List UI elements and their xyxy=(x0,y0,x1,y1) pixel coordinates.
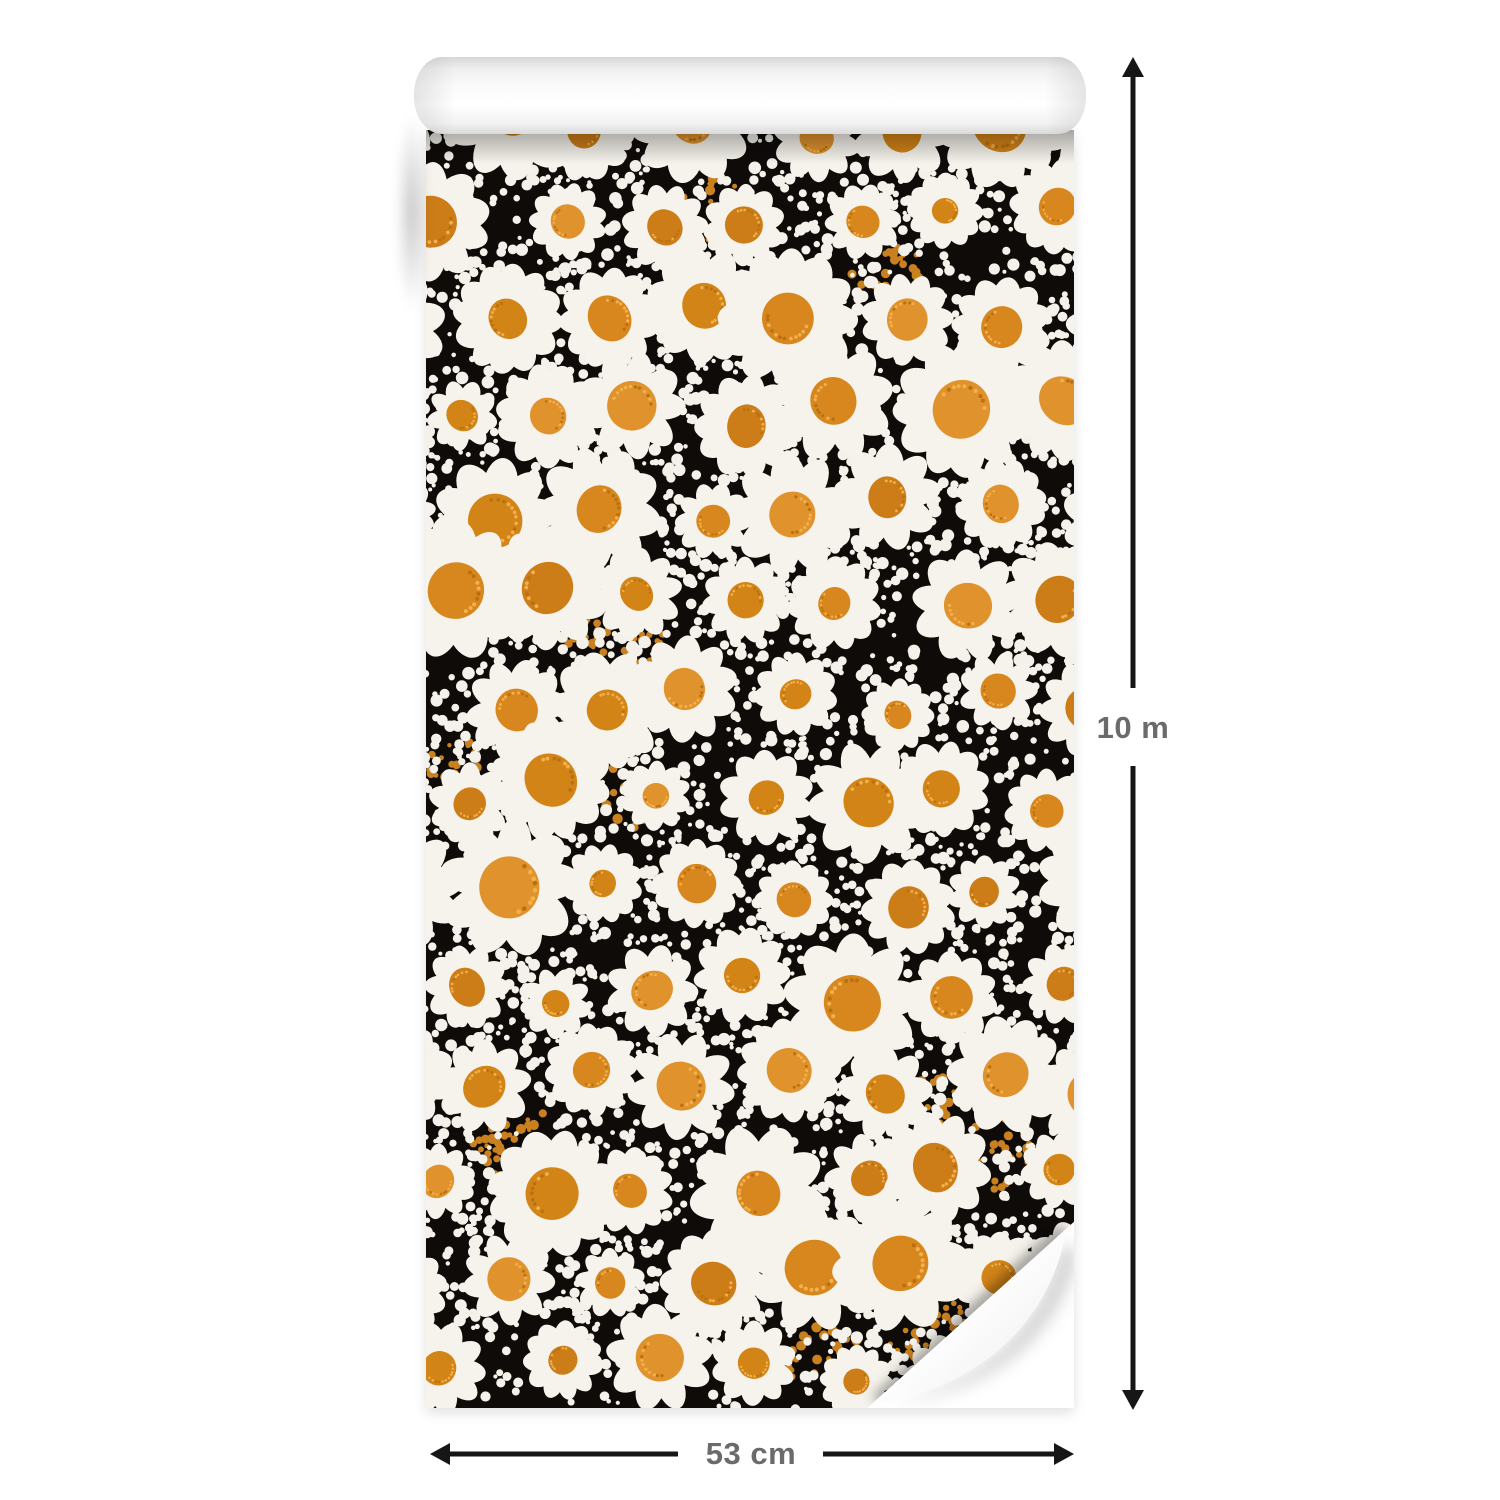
width-dimension-arrow: 53 cm xyxy=(420,1428,1084,1480)
daisy-pattern xyxy=(426,130,1074,1408)
width-label: 53 cm xyxy=(706,1436,796,1471)
arrowhead-right-icon xyxy=(1054,1443,1074,1465)
wallpaper-sheet xyxy=(426,130,1074,1408)
product-image: 10 m 53 cm xyxy=(0,0,1500,1500)
arrow-shaft xyxy=(823,1452,1055,1457)
height-dimension-arrow: 10 m xyxy=(1103,50,1163,1418)
arrow-shaft xyxy=(1131,75,1136,688)
daisy-pattern-layer xyxy=(426,130,1074,1408)
arrow-shaft xyxy=(448,1452,678,1457)
arrowhead-up-icon xyxy=(1122,57,1144,77)
roll-cast-shadow xyxy=(426,130,1074,164)
wallpaper-roll-top xyxy=(414,57,1086,134)
roll-side-shadow xyxy=(396,112,428,312)
arrow-shaft xyxy=(1131,766,1136,1392)
arrowhead-left-icon xyxy=(430,1443,450,1465)
height-label: 10 m xyxy=(1097,710,1170,745)
arrowhead-down-icon xyxy=(1122,1390,1144,1410)
